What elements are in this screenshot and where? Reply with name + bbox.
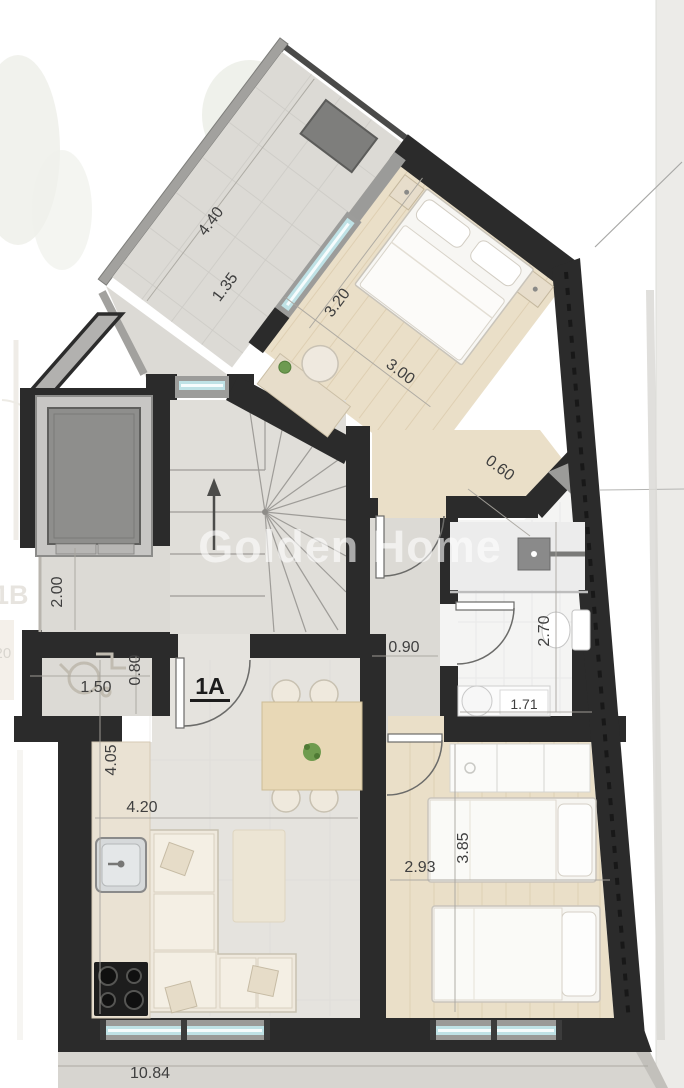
elevator-cab (48, 408, 140, 544)
living-west-wall (58, 742, 92, 1020)
pillow (562, 912, 596, 996)
dim-living-width: 4.20 (126, 799, 157, 816)
living-bedroom2-wall (360, 634, 386, 1022)
vestibule-south-wall (14, 716, 122, 742)
window-stair-hall (175, 376, 229, 398)
dim-hallway: 0.90 (388, 639, 419, 656)
bed-single-2 (432, 906, 600, 1002)
duvet (430, 800, 556, 880)
wardrobe (450, 744, 590, 792)
dim-bedroom2-width: 2.93 (404, 859, 435, 876)
bed-single-1 (428, 798, 596, 882)
unit-label-1a: 1A (190, 673, 230, 702)
floor-plan-drawing: 1B 1.20 (0, 0, 684, 1088)
window-bedroom2 (430, 1020, 562, 1040)
cooktop (94, 962, 148, 1016)
dim-building-width: 10.84 (130, 1065, 170, 1082)
dim-bathroom-length: 2.70 (536, 615, 553, 646)
northwest-corner-wall (26, 314, 122, 396)
throw-pillow (248, 966, 279, 997)
duvet (434, 908, 562, 1000)
elevator (36, 396, 152, 556)
unit-label-text: 1A (195, 673, 224, 699)
dim-corridor: 2.00 (49, 576, 66, 607)
dim-vestibule-depth: 0.80 (127, 654, 144, 685)
window-living (100, 1020, 270, 1040)
elevator-door (56, 544, 96, 554)
bedroom2-furniture (428, 744, 600, 1002)
adjacent-dimension-label: 1.20 (0, 645, 11, 662)
kitchen (92, 742, 150, 1018)
dim-vestibule-width: 1.50 (80, 679, 111, 696)
tree-icon (32, 150, 92, 270)
watermark-text: Golden Home (198, 521, 502, 572)
floor-plan-page: 1B 1.20 (0, 0, 684, 1088)
dim-bedroom2-length: 3.85 (455, 832, 472, 863)
elevator-door (98, 544, 134, 554)
living-north-wall (250, 634, 370, 658)
pillow (558, 804, 592, 876)
rug (233, 830, 285, 922)
adjacent-unit-label: 1B (0, 580, 29, 610)
dim-bathroom-width: 1.71 (510, 696, 537, 712)
dim-living-depth: 4.05 (103, 744, 120, 775)
sofa-cushion (154, 894, 214, 950)
